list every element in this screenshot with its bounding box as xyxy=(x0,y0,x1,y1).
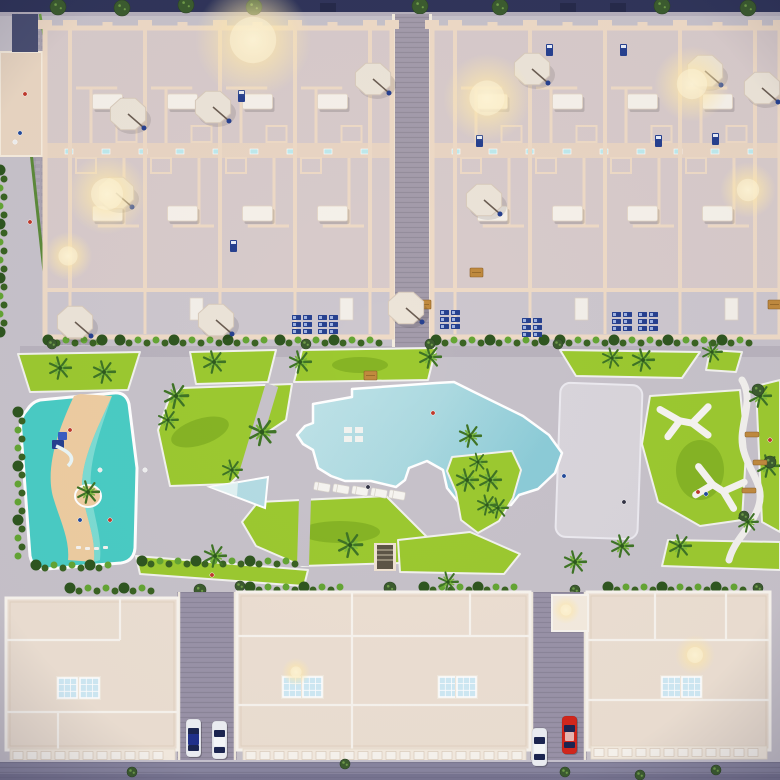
blue-lounger xyxy=(712,133,719,145)
warm-light-glow xyxy=(44,232,92,280)
kids-pool-zone xyxy=(21,393,137,569)
person xyxy=(768,438,772,442)
wood-furniture xyxy=(364,371,377,380)
warm-light-glow xyxy=(720,162,776,218)
warm-light-glow xyxy=(654,46,730,122)
person xyxy=(143,468,147,472)
person xyxy=(704,492,708,496)
garage-ramp xyxy=(374,543,396,571)
skylight-window xyxy=(680,675,703,699)
tree-canopy xyxy=(553,339,563,349)
person xyxy=(210,573,214,577)
masterplan-aerial-render: Top-down dusk aerial 3D render of a resi… xyxy=(0,0,780,780)
person xyxy=(78,518,82,522)
person xyxy=(23,92,27,96)
aerial-render-stage: Top-down dusk aerial 3D render of a resi… xyxy=(0,0,780,780)
person xyxy=(98,468,102,472)
blue-lounger xyxy=(655,135,662,147)
person xyxy=(13,140,17,144)
tree-canopy xyxy=(425,339,435,349)
grass-patch xyxy=(332,357,388,373)
person xyxy=(28,220,32,224)
person xyxy=(18,131,22,135)
tree-canopy xyxy=(654,0,670,14)
blue-lounger xyxy=(620,44,627,56)
roof-building xyxy=(237,592,530,750)
tree-canopy xyxy=(711,765,721,775)
bottom-road xyxy=(0,760,780,780)
tree-canopy xyxy=(340,759,350,769)
blue-lounger xyxy=(230,240,237,252)
warm-light-glow xyxy=(67,154,147,234)
tree-canopy xyxy=(492,0,508,15)
tree-canopy xyxy=(412,0,428,14)
person xyxy=(108,518,112,522)
planter xyxy=(320,3,336,12)
lawn-left-strip xyxy=(18,352,140,392)
person xyxy=(431,411,435,415)
bench xyxy=(753,460,767,465)
tree-canopy xyxy=(178,0,194,13)
tree-canopy xyxy=(635,770,645,780)
tree-canopy xyxy=(50,0,66,15)
entry-stairs xyxy=(12,14,38,52)
person xyxy=(68,428,72,432)
skylight-window xyxy=(660,675,683,699)
tree-canopy xyxy=(47,339,57,349)
warm-light-glow xyxy=(443,54,531,142)
roof-building xyxy=(587,592,770,750)
bottom-buildings-area xyxy=(0,592,780,780)
top-street-band xyxy=(0,0,780,16)
car xyxy=(212,721,228,760)
lawn-top-a xyxy=(190,350,276,384)
skylight-window xyxy=(78,676,101,700)
pool-deck xyxy=(555,383,642,540)
tree-canopy xyxy=(739,511,749,521)
tree-canopy xyxy=(560,767,570,777)
tree-canopy xyxy=(235,581,245,591)
person xyxy=(696,490,700,494)
lawn-top-right-a xyxy=(560,350,700,378)
tree-canopy xyxy=(752,384,764,396)
car xyxy=(186,719,202,758)
tree-canopy xyxy=(114,0,130,16)
blue-lounger xyxy=(546,44,553,56)
skylight-window xyxy=(56,676,79,700)
balcony-row xyxy=(591,746,767,759)
warm-light-glow xyxy=(675,635,715,675)
tree-canopy xyxy=(740,0,756,16)
person xyxy=(622,500,626,504)
person xyxy=(562,474,566,478)
wood-furniture xyxy=(470,268,483,277)
warm-light-glow xyxy=(552,596,580,624)
wood-furniture xyxy=(768,300,780,309)
entry-wall xyxy=(0,52,42,156)
planter xyxy=(560,3,576,12)
skylight-window xyxy=(455,675,478,699)
bench xyxy=(742,488,756,493)
bottom-building-shells xyxy=(6,592,770,762)
car xyxy=(562,716,578,755)
planter xyxy=(610,3,626,12)
lawn-path xyxy=(303,497,305,566)
person xyxy=(366,485,370,489)
tree-canopy xyxy=(127,767,137,777)
warm-light-glow xyxy=(282,658,310,686)
tree-canopy xyxy=(301,339,311,349)
car xyxy=(532,728,548,767)
roof-building xyxy=(6,598,178,750)
bench xyxy=(745,432,759,437)
